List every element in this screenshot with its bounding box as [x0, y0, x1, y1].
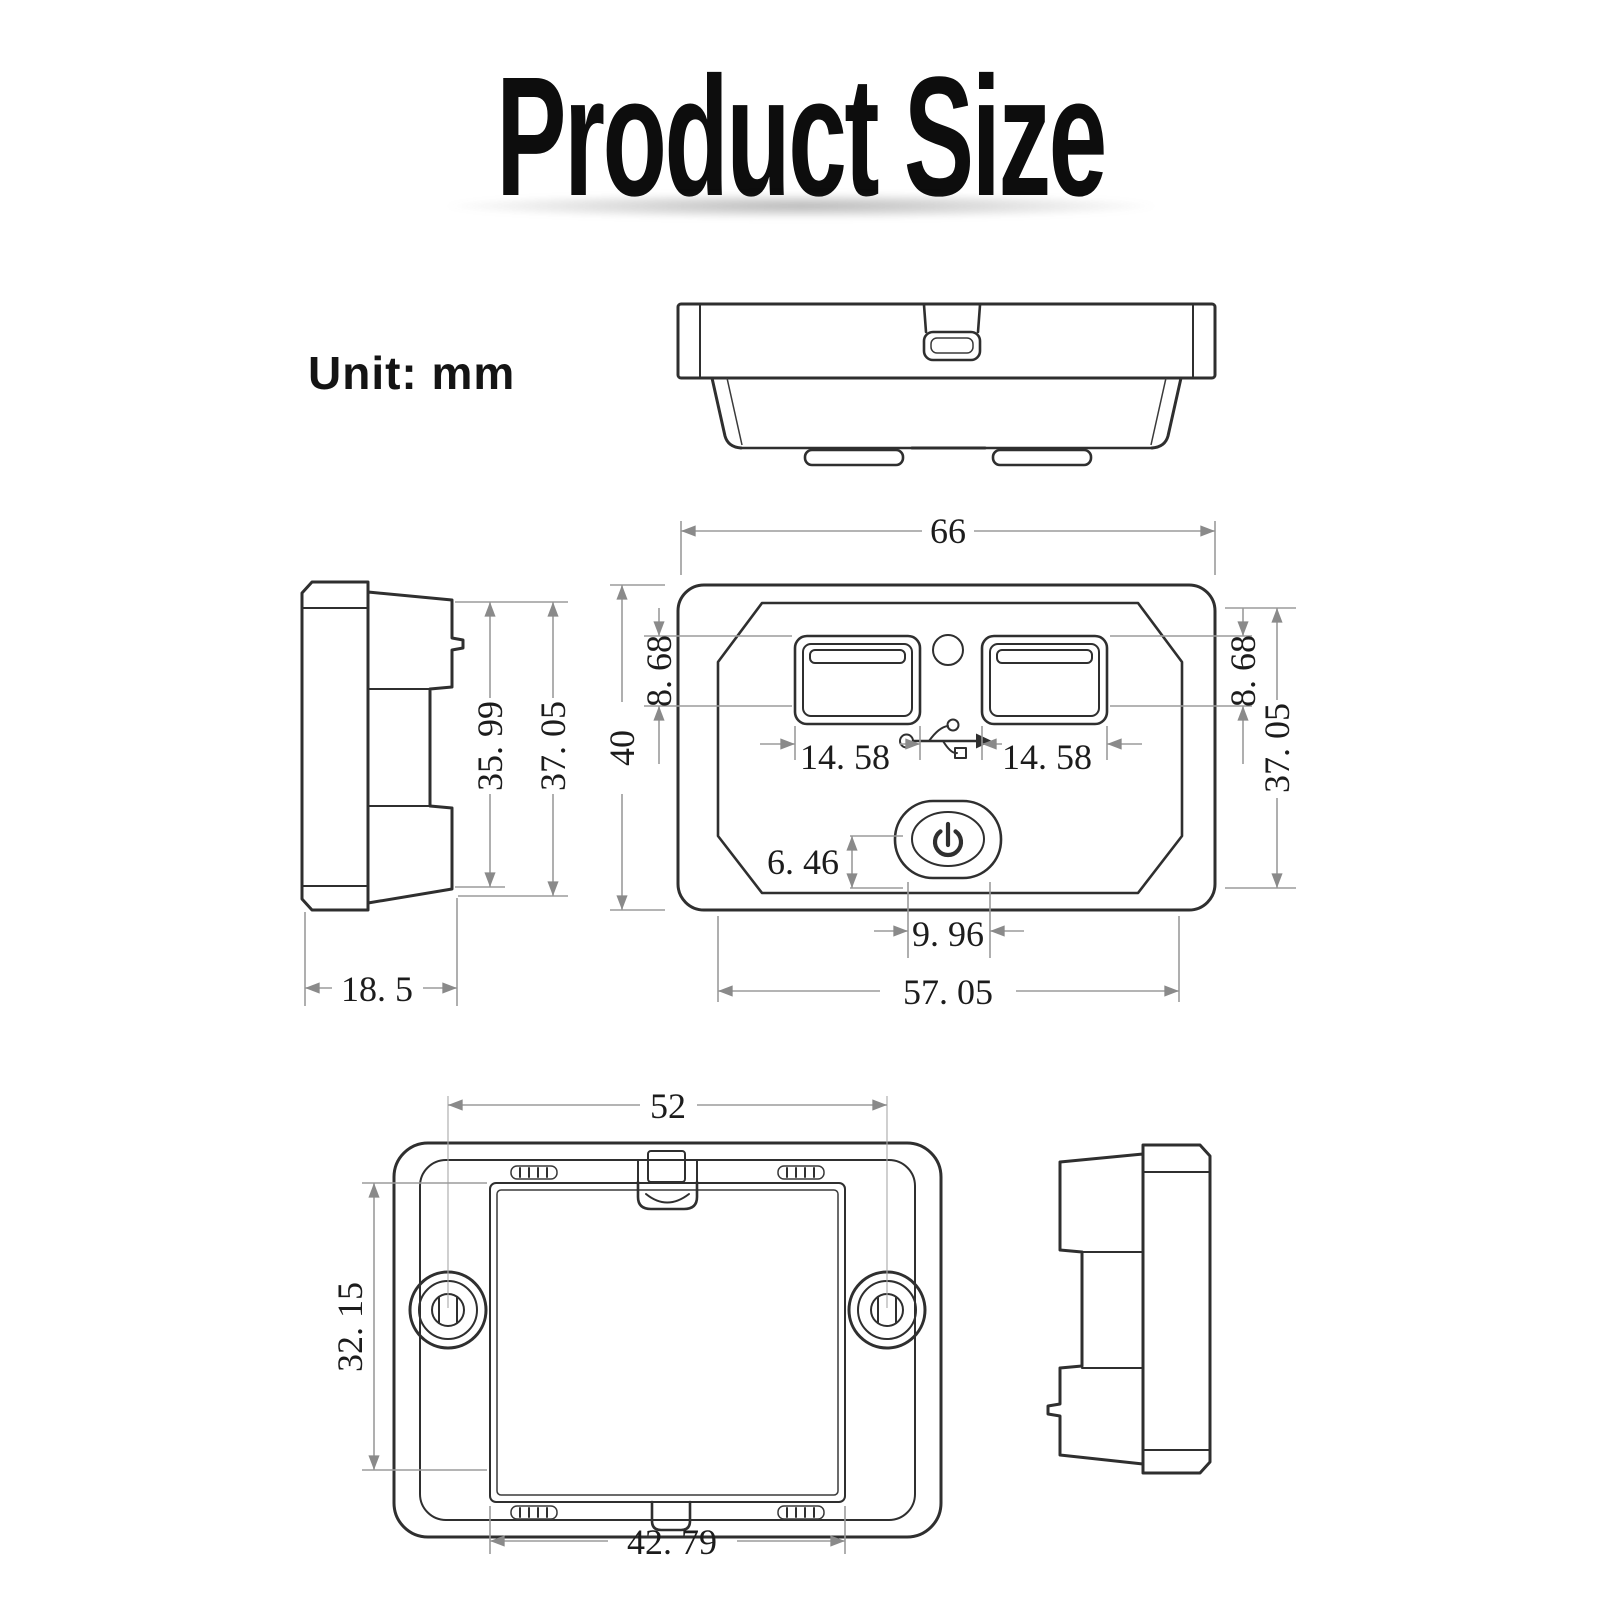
side-view-right	[1048, 1145, 1210, 1473]
dim-overall-width: 66	[930, 511, 966, 551]
dim-overall-height: 40	[602, 730, 642, 766]
dim-usb-width-left: 14. 58	[800, 737, 890, 777]
dim-cutout-width: 42. 79	[627, 1522, 717, 1562]
dim-panel-width: 57. 05	[903, 972, 993, 1012]
vent-hatch-bottom-left	[511, 1506, 557, 1519]
side-view-left: 35. 99 37. 05 18. 5	[302, 582, 573, 1009]
top-view	[678, 304, 1215, 465]
usb-port-left	[795, 636, 920, 724]
led-indicator-icon	[933, 635, 963, 665]
dim-usb-offset-right: 8. 68	[1223, 635, 1263, 707]
product-size-diagram: Product Size Unit: mm	[0, 0, 1601, 1601]
foot-left	[805, 450, 903, 465]
back-view: 52 32. 15 42. 79	[330, 1086, 941, 1562]
dim-power-height: 6. 46	[767, 842, 839, 882]
power-button-icon	[895, 801, 1001, 878]
dim-panel-height: 37. 05	[1257, 703, 1297, 793]
vent-hatch-top-right	[778, 1166, 824, 1179]
vent-hatch-top-left	[511, 1166, 557, 1179]
drawing: 35. 99 37. 05 18. 5	[0, 0, 1601, 1601]
dim-usb-width-right: 14. 58	[1002, 737, 1092, 777]
dim-side-outer-height: 37. 05	[533, 701, 573, 791]
dim-cutout-height: 32. 15	[330, 1282, 370, 1372]
dim-hole-spacing: 52	[650, 1086, 686, 1126]
dim-power-width: 9. 96	[912, 914, 984, 954]
vent-hatch-bottom-right	[778, 1506, 824, 1519]
front-view: 66 40 8. 68 8. 68 37. 05	[602, 511, 1297, 1012]
foot-right	[993, 450, 1091, 465]
dim-side-inner-height: 35. 99	[470, 701, 510, 791]
usb-trident-icon	[900, 720, 992, 759]
usb-port-right	[982, 636, 1107, 724]
top-clip-tab	[924, 305, 980, 360]
dim-usb-offset-left: 8. 68	[639, 635, 679, 707]
dim-side-depth: 18. 5	[341, 969, 413, 1009]
